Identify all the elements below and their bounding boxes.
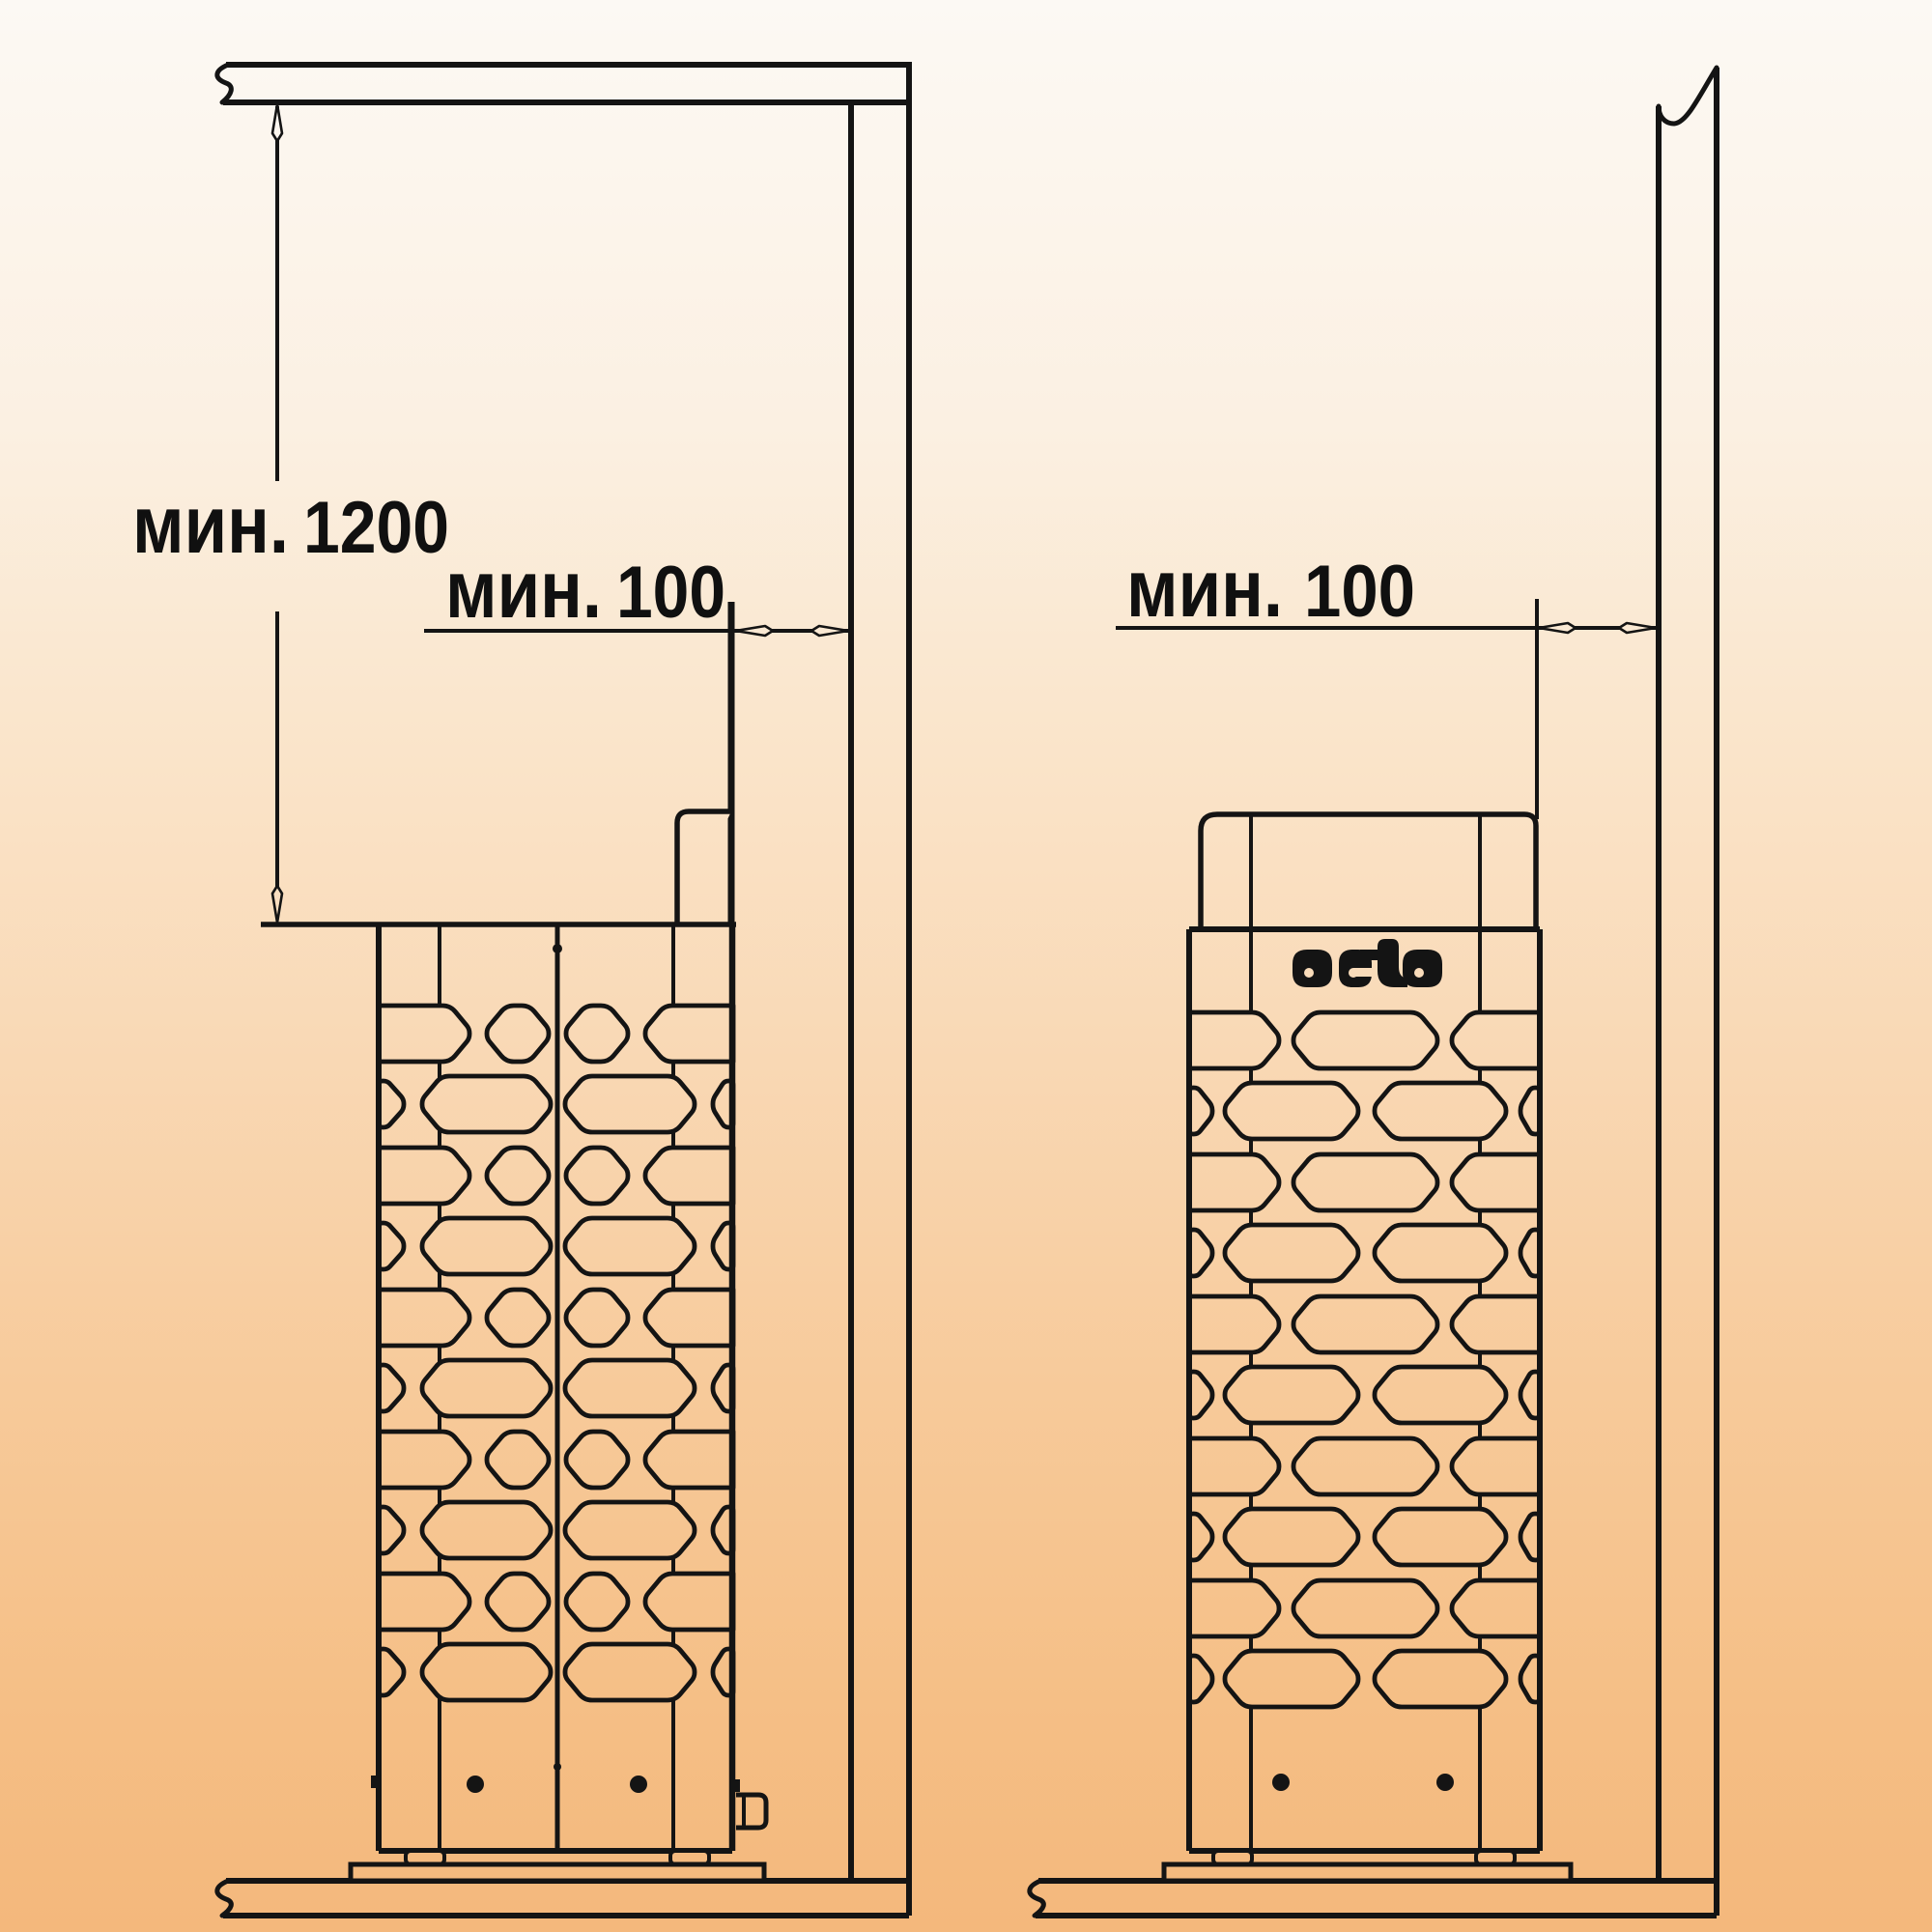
- svg-text:мин.100: мин.100: [1126, 543, 1415, 634]
- svg-text:мин.100: мин.100: [445, 544, 725, 635]
